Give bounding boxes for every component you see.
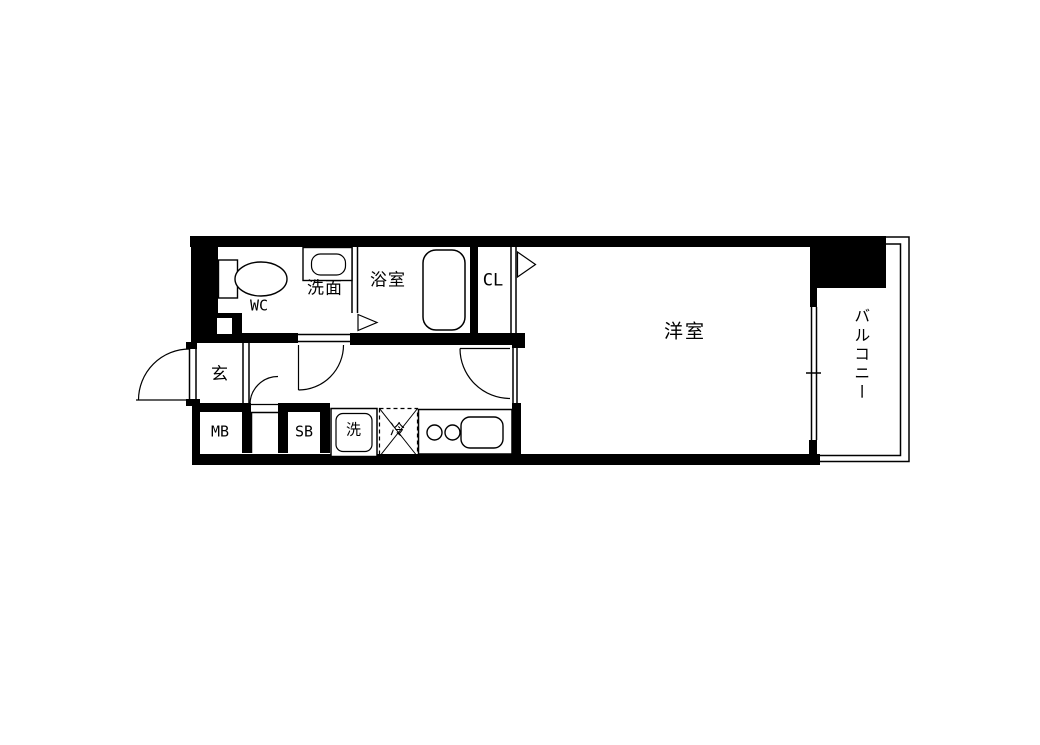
washroom-door-arc — [299, 345, 344, 390]
wall-sb-top-strip — [278, 403, 330, 412]
washroom-door-swing-icon — [299, 345, 344, 390]
hall-closet-door-arc — [250, 377, 278, 405]
room-door-arc — [460, 349, 510, 399]
washroom-room-label: 洗面 — [307, 281, 343, 298]
balcony-label: バルコニー — [851, 308, 869, 403]
wall-hall-top — [350, 333, 521, 345]
wall-room-corner-block — [810, 236, 886, 288]
stove-burners-icon — [427, 425, 460, 440]
wall-sb-right — [320, 412, 330, 453]
wall-hall-room-divider — [512, 403, 521, 465]
washroom-bath-divider-lines — [352, 247, 358, 313]
wall-washroom-bottom — [242, 333, 298, 343]
refrigerator-label: 冷 — [390, 423, 406, 438]
wall-mb-right — [242, 412, 251, 453]
closet-face-lines — [511, 247, 516, 333]
wall-notch — [217, 318, 232, 334]
meter-box-label: MB — [211, 425, 229, 440]
washroom-door-frame-lines — [298, 335, 350, 342]
entrance-room-label: 玄 — [211, 367, 229, 384]
closet-opening-triangle-icon — [518, 252, 536, 277]
wall-junction-block — [512, 333, 525, 348]
washbasin-icon — [303, 248, 352, 281]
burner-right — [445, 425, 460, 440]
wc-room-label: WC — [250, 299, 268, 314]
wall-entrance-jamb-top — [186, 342, 197, 349]
entrance-door-jamb-lines — [190, 349, 197, 399]
wall-wc-left-column — [191, 236, 218, 343]
room-door-frame-lines — [513, 348, 517, 403]
room-door-swing-icon — [460, 349, 510, 399]
bathroom-opening-triangle-icon — [358, 315, 377, 331]
entrance-door-arc — [139, 349, 190, 400]
bathtub-icon — [423, 250, 465, 330]
hall-closet-door-swing-icon — [250, 377, 278, 405]
wall-window-top-stub — [810, 288, 817, 307]
floor-plan: WC 洗面 浴室 CL 玄 MB SB 洗 冷 洋室 バルコニー — [0, 0, 1040, 745]
wall-bath-closet-divider — [470, 247, 478, 333]
under-stair-closet-outline — [251, 413, 278, 454]
western-room-label: 洋室 — [664, 323, 706, 342]
shoe-box-label: SB — [295, 425, 313, 440]
kitchen-sink-icon — [461, 417, 503, 448]
washbasin-bowl — [312, 254, 346, 275]
closet-room-label: CL — [483, 273, 503, 290]
walls — [186, 236, 886, 465]
wall-mb-top-strip — [192, 403, 251, 412]
wall-top — [190, 236, 886, 247]
floor-plan-drawing — [0, 0, 1040, 745]
wall-bottom — [192, 454, 820, 465]
entrance-door-swing-icon — [136, 349, 190, 400]
washer-label: 洗 — [346, 423, 362, 438]
wall-window-bottom-stub — [809, 440, 817, 457]
toilet-icon — [219, 260, 288, 298]
entrance-divider-lines — [243, 343, 249, 403]
wall-sb-left — [278, 412, 288, 453]
bathroom-room-label: 浴室 — [370, 273, 406, 290]
toilet-bowl — [235, 262, 287, 296]
burner-left — [427, 425, 442, 440]
